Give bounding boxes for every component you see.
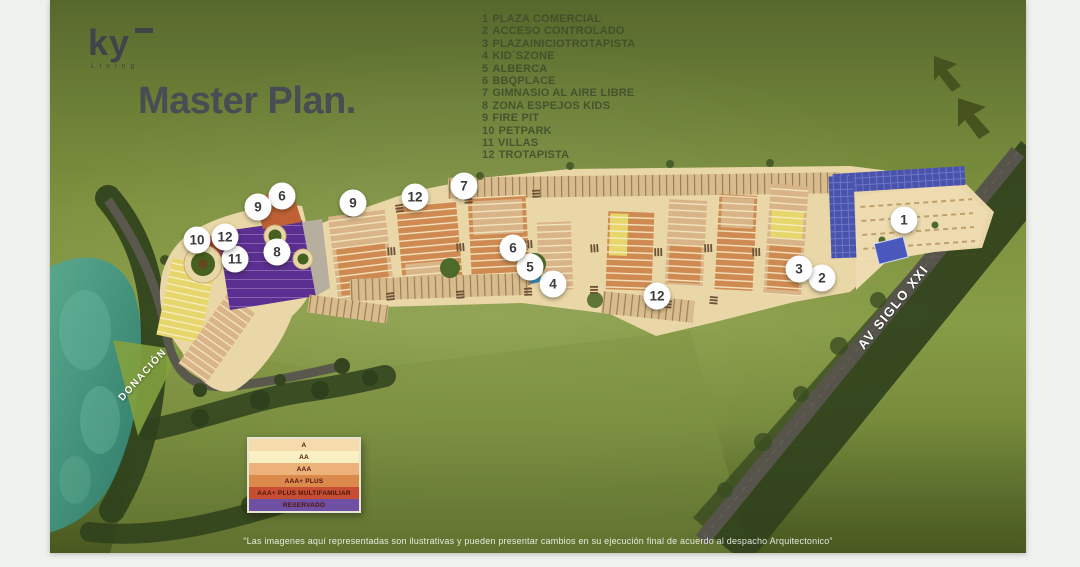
category-legend-row: AAA bbox=[249, 463, 359, 475]
amenities-legend-item: 10PETPARK bbox=[482, 125, 635, 137]
page-title: Master Plan. bbox=[138, 80, 356, 123]
amenities-legend-item: 8ZONA ESPEJOS KIDS bbox=[482, 100, 635, 112]
amenity-number: 11 bbox=[482, 137, 494, 149]
master-plan-slide: ky Living Master Plan. 1PLAZA COMERCIAL … bbox=[0, 0, 1080, 567]
category-legend-row: AAA+ PLUS MULTIFAMILIAR bbox=[249, 487, 359, 499]
amenities-legend-item: 2ACCESO CONTROLADO bbox=[482, 25, 635, 37]
category-legend-label: AAA+ PLUS bbox=[285, 478, 324, 485]
amenity-number: 4 bbox=[482, 50, 488, 62]
amenities-legend-item: 3PLAZAINICIOTROTAPISTA bbox=[482, 38, 635, 50]
category-legend: A AA AAA AAA+ PLUS AAA+ PLUS MULTIFAMILI… bbox=[247, 437, 361, 513]
amenities-legend-item: 11VILLAS bbox=[482, 137, 635, 149]
amenity-label: GIMNASIO AL AIRE LIBRE bbox=[492, 87, 634, 99]
amenity-label: ALBERCA bbox=[492, 63, 547, 75]
amenities-legend-item: 4KID´SZONE bbox=[482, 50, 635, 62]
amenities-legend: 1PLAZA COMERCIAL 2ACCESO CONTROLADO 3PLA… bbox=[482, 13, 635, 162]
category-legend-row: AA bbox=[249, 451, 359, 463]
amenity-label: ACCESO CONTROLADO bbox=[492, 25, 624, 37]
logo-subtext: Living bbox=[91, 63, 139, 70]
amenity-label: TROTAPISTA bbox=[499, 149, 570, 161]
amenity-label: PETPARK bbox=[499, 125, 552, 137]
category-legend-label: A bbox=[302, 442, 307, 449]
logo-text: ky bbox=[88, 24, 139, 62]
amenities-legend-item: 9FIRE PIT bbox=[482, 112, 635, 124]
category-legend-row: RESERVADO bbox=[249, 499, 359, 511]
direction-arrows-icon bbox=[934, 56, 990, 139]
amenities-legend-item: 12TROTAPISTA bbox=[482, 149, 635, 161]
category-legend-label: RESERVADO bbox=[283, 502, 325, 509]
category-legend-label: AA bbox=[299, 454, 309, 461]
amenity-label: ZONA ESPEJOS KIDS bbox=[492, 100, 610, 112]
amenity-label: KID´SZONE bbox=[492, 50, 554, 62]
amenity-label: PLAZA COMERCIAL bbox=[492, 13, 601, 25]
brand-logo: ky Living bbox=[88, 24, 139, 70]
amenity-number: 3 bbox=[482, 38, 488, 50]
amenity-number: 7 bbox=[482, 87, 488, 99]
amenity-number: 10 bbox=[482, 125, 495, 137]
disclaimer-text: “Las imagenes aquí representadas son ilu… bbox=[50, 536, 1026, 546]
category-legend-label: AAA bbox=[297, 466, 312, 473]
logo-bar bbox=[135, 28, 153, 33]
amenity-number: 2 bbox=[482, 25, 488, 37]
amenity-number: 12 bbox=[482, 149, 495, 161]
category-legend-label: AAA+ PLUS MULTIFAMILIAR bbox=[257, 490, 351, 497]
amenities-legend-item: 7GIMNASIO AL AIRE LIBRE bbox=[482, 87, 635, 99]
amenity-label: PLAZAINICIOTROTAPISTA bbox=[492, 38, 635, 50]
amenities-legend-item: 5ALBERCA bbox=[482, 63, 635, 75]
amenities-legend-item: 6BBQPLACE bbox=[482, 75, 635, 87]
amenity-label: FIRE PIT bbox=[492, 112, 539, 124]
category-legend-row: A bbox=[249, 439, 359, 451]
amenity-number: 6 bbox=[482, 75, 488, 87]
map-canvas: ky Living Master Plan. 1PLAZA COMERCIAL … bbox=[50, 0, 1026, 553]
amenity-number: 5 bbox=[482, 63, 488, 75]
amenity-label: BBQPLACE bbox=[492, 75, 555, 87]
amenity-label: VILLAS bbox=[498, 137, 538, 149]
amenities-legend-item: 1PLAZA COMERCIAL bbox=[482, 13, 635, 25]
amenity-number: 1 bbox=[482, 13, 488, 25]
category-legend-row: AAA+ PLUS bbox=[249, 475, 359, 487]
amenity-number: 9 bbox=[482, 112, 488, 124]
amenity-number: 8 bbox=[482, 100, 488, 112]
